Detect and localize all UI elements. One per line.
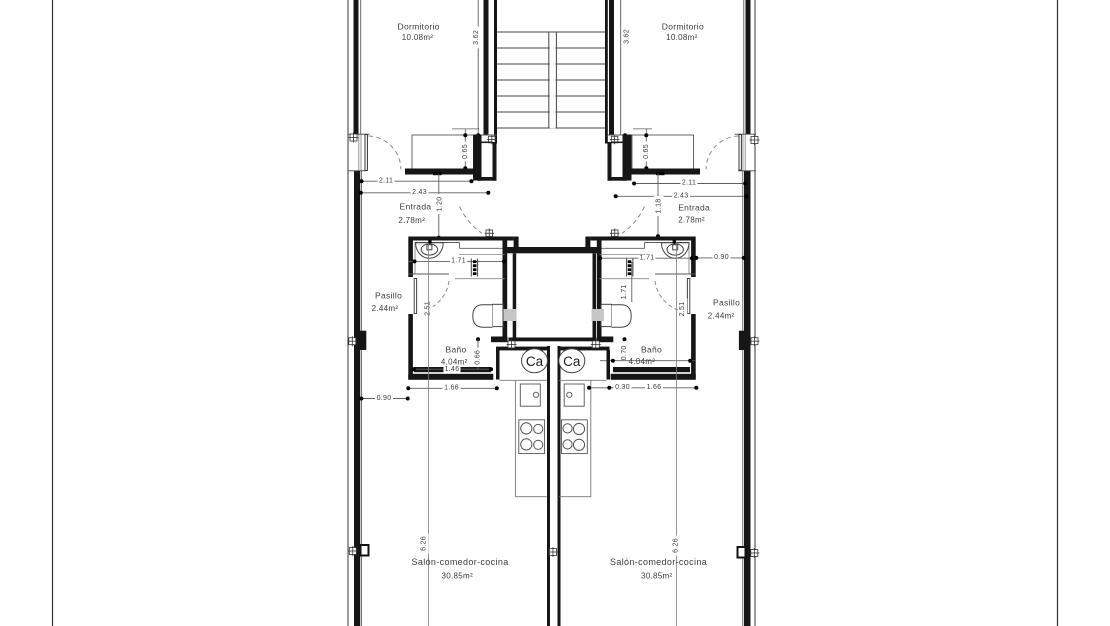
svg-text:1.71: 1.71 — [621, 284, 628, 299]
svg-text:Salón-comedor-cocina: Salón-comedor-cocina — [412, 557, 509, 567]
svg-text:2.51: 2.51 — [425, 301, 432, 316]
svg-text:2.78m²: 2.78m² — [678, 216, 705, 225]
svg-text:30.85m²: 30.85m² — [641, 572, 672, 581]
svg-text:0.65: 0.65 — [462, 144, 469, 159]
svg-text:1.71: 1.71 — [640, 255, 655, 262]
svg-text:Dormitorio: Dormitorio — [398, 22, 440, 32]
svg-text:1.18: 1.18 — [655, 198, 662, 213]
svg-text:0.90: 0.90 — [377, 395, 392, 402]
svg-text:2.51: 2.51 — [679, 302, 686, 317]
svg-text:Ca: Ca — [563, 354, 581, 369]
svg-text:Pasillo: Pasillo — [713, 297, 740, 307]
svg-text:2.43: 2.43 — [412, 189, 427, 196]
svg-text:1.66: 1.66 — [444, 385, 459, 392]
svg-text:0.30: 0.30 — [615, 384, 630, 391]
svg-text:2.44m²: 2.44m² — [708, 311, 735, 320]
svg-text:6.26: 6.26 — [672, 538, 679, 553]
svg-text:2.44m²: 2.44m² — [372, 304, 399, 313]
svg-text:30.85m²: 30.85m² — [442, 572, 473, 581]
svg-text:Dormitorio: Dormitorio — [662, 22, 704, 32]
svg-text:0.66: 0.66 — [475, 350, 482, 365]
svg-text:3.62: 3.62 — [473, 30, 480, 45]
svg-text:Pasillo: Pasillo — [375, 290, 402, 300]
svg-text:2.11: 2.11 — [379, 178, 393, 185]
svg-text:Ca: Ca — [526, 354, 544, 369]
svg-text:2.43: 2.43 — [674, 193, 689, 200]
svg-text:1.71: 1.71 — [451, 258, 466, 265]
svg-text:3.62: 3.62 — [624, 29, 631, 44]
svg-text:Baño: Baño — [641, 345, 662, 355]
svg-text:0.90: 0.90 — [714, 254, 729, 261]
svg-text:Salón-comedor-cocina: Salón-comedor-cocina — [610, 557, 707, 567]
svg-text:0.65: 0.65 — [643, 144, 650, 159]
svg-text:6.26: 6.26 — [421, 536, 428, 551]
svg-text:0.70: 0.70 — [621, 345, 628, 360]
svg-text:2.78m²: 2.78m² — [398, 216, 425, 225]
svg-text:1.66: 1.66 — [647, 384, 662, 391]
svg-text:1.46: 1.46 — [445, 366, 460, 373]
svg-text:1.20: 1.20 — [436, 197, 443, 212]
svg-text:10.08m²: 10.08m² — [666, 33, 697, 42]
svg-text:10.08m²: 10.08m² — [402, 33, 433, 42]
svg-text:Baño: Baño — [446, 345, 467, 355]
svg-text:Entrada: Entrada — [400, 202, 432, 212]
svg-text:Entrada: Entrada — [678, 203, 710, 213]
svg-text:4.04m²: 4.04m² — [629, 357, 656, 366]
svg-text:2.11: 2.11 — [682, 180, 696, 187]
